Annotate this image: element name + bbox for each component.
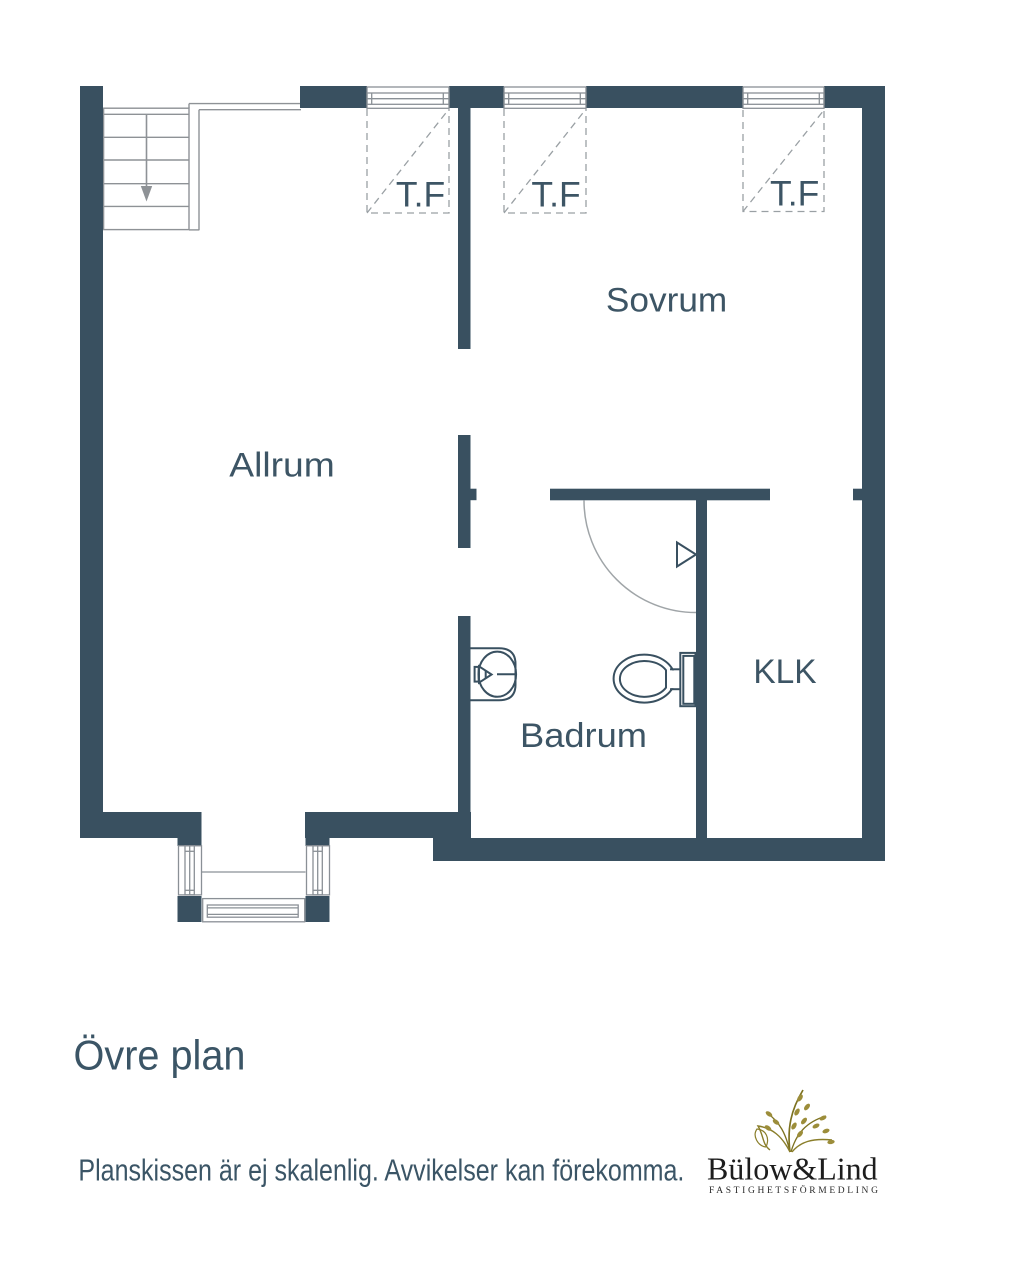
svg-text:Övre plan: Övre plan bbox=[74, 1032, 246, 1079]
svg-text:Badrum: Badrum bbox=[520, 717, 647, 755]
svg-text:T.F: T.F bbox=[531, 175, 580, 215]
svg-text:Planskissen är ej skalenlig. A: Planskissen är ej skalenlig. Avvikelser … bbox=[78, 1153, 684, 1188]
svg-text:FASTIGHETSFÖRMEDLING: FASTIGHETSFÖRMEDLING bbox=[709, 1184, 881, 1196]
svg-text:Bülow&Lind: Bülow&Lind bbox=[707, 1151, 878, 1187]
svg-text:Sovrum: Sovrum bbox=[606, 282, 727, 320]
svg-text:KLK: KLK bbox=[753, 653, 817, 691]
svg-text:T.F: T.F bbox=[770, 174, 819, 214]
svg-text:Allrum: Allrum bbox=[229, 447, 335, 485]
svg-text:T.F: T.F bbox=[396, 175, 445, 215]
